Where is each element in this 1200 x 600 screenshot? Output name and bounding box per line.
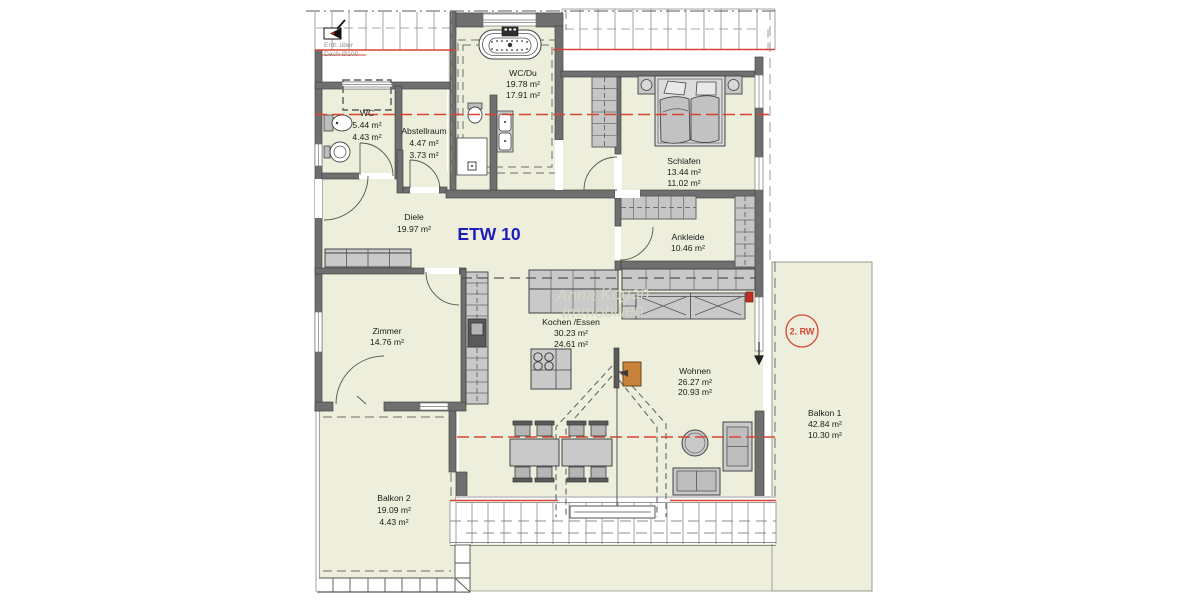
svg-text:20.93 m²: 20.93 m²: [678, 387, 712, 397]
svg-text:5.44 m²: 5.44 m²: [352, 120, 381, 130]
svg-text:Abstellraum: Abstellraum: [401, 126, 446, 136]
svg-text:26.27 m²: 26.27 m²: [678, 377, 712, 387]
svg-text:10.46 m²: 10.46 m²: [671, 243, 705, 253]
svg-text:ETW 10: ETW 10: [457, 224, 520, 244]
svg-text:4.47 m²: 4.47 m²: [409, 138, 438, 148]
svg-text:14.76 m²: 14.76 m²: [370, 337, 404, 347]
svg-text:10.30 m²: 10.30 m²: [808, 430, 842, 440]
svg-text:24.61 m²: 24.61 m²: [554, 339, 588, 349]
svg-text:19.78 m²: 19.78 m²: [506, 79, 540, 89]
svg-text:3.73 m²: 3.73 m²: [409, 150, 438, 160]
svg-text:30.23 m²: 30.23 m²: [554, 328, 588, 338]
svg-text:Wohnen: Wohnen: [679, 366, 711, 376]
svg-text:WC/Du: WC/Du: [509, 68, 537, 78]
svg-text:Zimmer: Zimmer: [372, 326, 401, 336]
svg-text:Balkon 1: Balkon 1: [808, 408, 842, 418]
svg-text:WC: WC: [360, 108, 374, 118]
svg-text:42.84 m²: 42.84 m²: [808, 419, 842, 429]
svg-text:Diele: Diele: [404, 212, 424, 222]
svg-text:17.91 m²: 17.91 m²: [506, 90, 540, 100]
svg-text:11.02 m²: 11.02 m²: [667, 178, 700, 188]
svg-text:Dach Ø100: Dach Ø100: [324, 51, 359, 58]
svg-text:4.43 m²: 4.43 m²: [379, 517, 408, 527]
svg-text:Immobilien: Immobilien: [561, 301, 644, 323]
svg-text:Schlafen: Schlafen: [667, 156, 701, 166]
svg-text:4.43 m²: 4.43 m²: [352, 132, 381, 142]
svg-text:13.44 m²: 13.44 m²: [667, 167, 701, 177]
svg-text:19.09 m²: 19.09 m²: [377, 505, 411, 515]
svg-text:2. RW: 2. RW: [790, 327, 815, 337]
svg-text:Ankleide: Ankleide: [672, 232, 705, 242]
svg-text:19.97 m²: 19.97 m²: [397, 224, 431, 234]
svg-text:Balkon 2: Balkon 2: [377, 493, 411, 503]
svg-text:Entl. über: Entl. über: [324, 42, 354, 49]
